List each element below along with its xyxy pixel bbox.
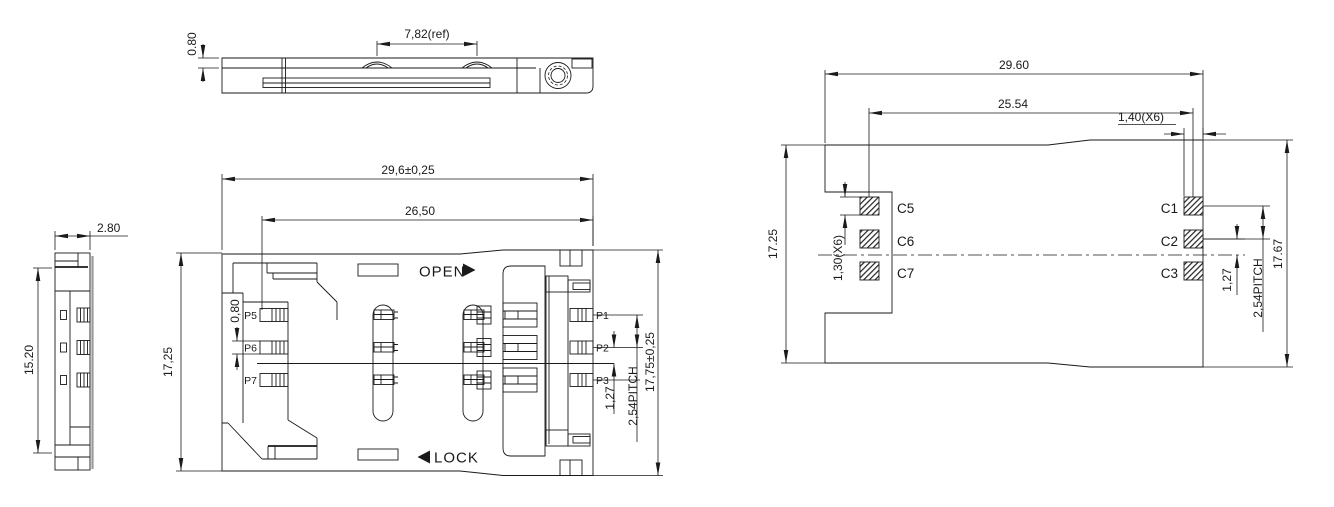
pad-label-c6: C6 <box>897 234 914 249</box>
open-label: OPEN <box>419 264 466 281</box>
dim-main-overall-label: 29,6±0,25 <box>381 163 435 177</box>
pad-label-c2: C2 <box>1161 234 1178 249</box>
pad-c7 <box>860 262 879 280</box>
pad-label-c5: C5 <box>897 201 914 216</box>
dim-fp-pitch-half-label: 1,27 <box>1220 268 1234 292</box>
dim-main-contact-label: 0,80 <box>228 299 242 323</box>
pin-label-p1: P1 <box>596 310 609 322</box>
pin-label-p5: P5 <box>244 310 257 322</box>
pad-c1 <box>1184 197 1203 215</box>
dim-main-height-label: 17,25 <box>161 347 175 377</box>
pad-c3 <box>1184 262 1203 280</box>
dim-main-pitch-half-label: 1,27 <box>603 386 617 410</box>
dim-fp-height-right-label: 17.67 <box>1271 239 1285 269</box>
dim-top-ref-label: 7,82(ref) <box>404 27 449 41</box>
pin-label-p3: P3 <box>596 375 609 387</box>
pad-c2 <box>1184 230 1203 248</box>
dim-fp-height-left-label: 17.25 <box>766 229 780 259</box>
dim-fp-pad-height-label: 1,30(X6) <box>831 235 845 281</box>
dim-fp-overall-label: 29.60 <box>999 58 1029 72</box>
pad-label-c1: C1 <box>1161 201 1178 216</box>
dim-fp-pitch-label: 2,54PITCH <box>1251 258 1265 317</box>
pad-c5 <box>860 197 879 215</box>
drawing-canvas: 0.80 7,82(ref) 2.80 <box>0 0 1334 507</box>
dim-top-thickness-label: 0.80 <box>185 32 199 56</box>
background <box>0 0 1334 507</box>
pad-label-c7: C7 <box>897 266 914 281</box>
dim-main-body-label: 26,50 <box>405 204 435 218</box>
dim-main-pitch-label: 2,54PITCH <box>626 366 640 425</box>
dim-side-width-label: 2.80 <box>97 221 121 235</box>
pin-label-p6: P6 <box>244 343 257 355</box>
dim-main-total-height-label: 17,75±0,25 <box>643 332 657 392</box>
dim-fp-span-label: 25.54 <box>998 97 1028 111</box>
pad-label-c3: C3 <box>1161 266 1178 281</box>
dim-side-height-label: 15.20 <box>22 345 36 375</box>
engineering-drawing: 0.80 7,82(ref) 2.80 <box>0 0 1334 507</box>
pad-c6 <box>860 230 879 248</box>
pin-label-p2: P2 <box>596 343 609 355</box>
pin-label-p7: P7 <box>244 375 257 387</box>
dim-fp-pad-width-label: 1,40(X6) <box>1118 110 1164 124</box>
lock-label: LOCK <box>434 450 479 467</box>
